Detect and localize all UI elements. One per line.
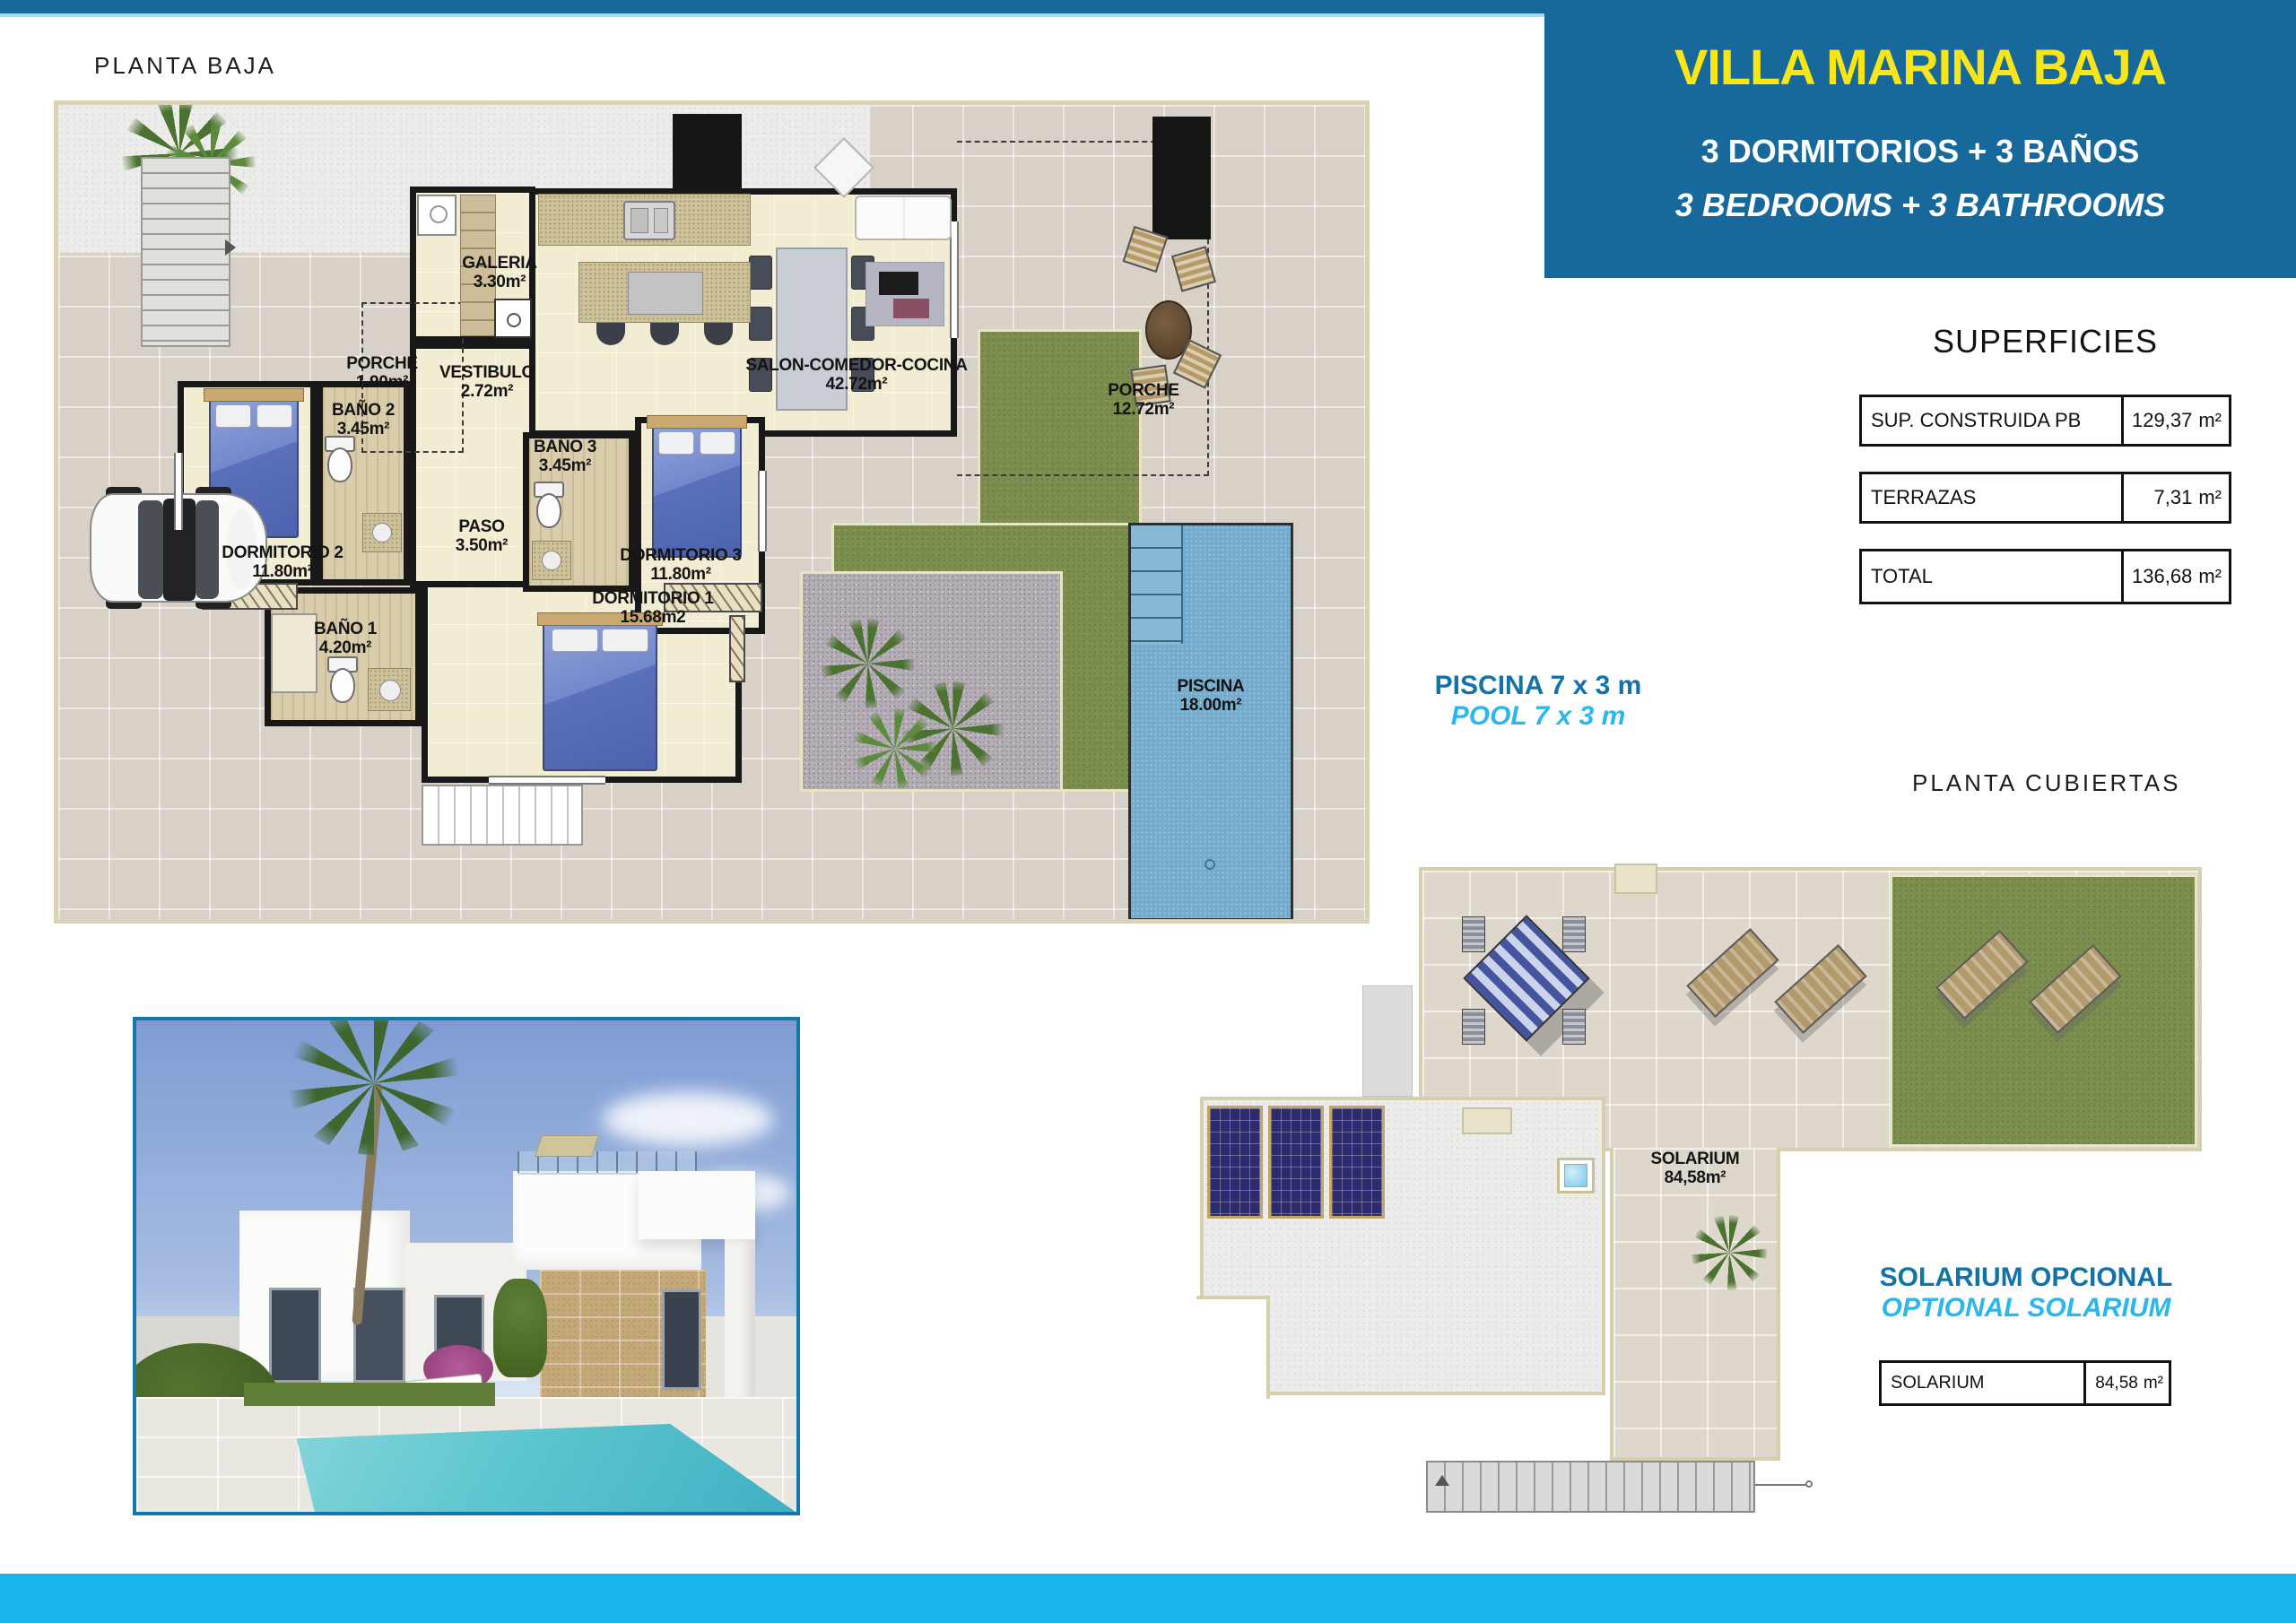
solarium-option: SOLARIUM OPCIONAL OPTIONAL SOLARIUM	[1874, 1263, 2179, 1324]
solarium-table: SOLARIUM 84,58m²	[1879, 1360, 2171, 1406]
window	[662, 1289, 701, 1390]
row-value: 136,68m²	[2121, 551, 2229, 602]
planting-bed	[800, 571, 1063, 792]
sofa	[855, 195, 952, 240]
window	[489, 776, 605, 785]
room-label-salon: SALON-COMEDOR-COCINA42.72m²	[745, 356, 967, 394]
roof-plan-title: PLANTA CUBIERTAS	[1912, 769, 2181, 797]
window	[269, 1288, 321, 1383]
room-label-paso: PASO3.50m²	[456, 517, 508, 555]
window	[950, 221, 959, 338]
roof-vent-block	[1614, 864, 1657, 894]
pool-steps	[1131, 525, 1183, 644]
handrail-end-icon	[1805, 1480, 1813, 1488]
pergola-chair	[1462, 1009, 1485, 1045]
toilet	[534, 482, 564, 528]
water-heater	[494, 299, 532, 338]
handrail-line	[1755, 1484, 1807, 1486]
stairs-direction-arrow-icon	[1435, 1475, 1449, 1486]
palm-plant	[821, 619, 915, 708]
bathroom-sink	[368, 668, 411, 711]
room-label-bano3: BAÑO 33.45m²	[534, 438, 596, 475]
row-value: 84,58m²	[2083, 1363, 2169, 1403]
pergola-chair	[1562, 1009, 1586, 1045]
solar-panel	[1268, 1106, 1324, 1219]
solarium-title-es: SOLARIUM OPCIONAL	[1874, 1263, 2179, 1293]
shower-tray	[271, 613, 317, 693]
row-label: SUP. CONSTRUIDA PB	[1862, 409, 2121, 432]
room-label-vestibulo: VESTIBULO2.72m²	[439, 363, 535, 401]
solar-panel	[1207, 1106, 1263, 1219]
roof-vent-block	[1462, 1107, 1512, 1134]
row-value: 129,37m²	[2121, 397, 2229, 444]
ground-floor-plan: GALERIA3.30m² PORCHE1.90m² VESTIBULO2.72…	[54, 100, 1370, 924]
kitchen-island	[578, 262, 751, 323]
pool-note: PISCINA 7 x 3 m POOL 7 x 3 m	[1422, 671, 1655, 732]
pool-note-en: POOL 7 x 3 m	[1422, 701, 1655, 732]
villa-canopy	[639, 1171, 755, 1239]
swimming-pool	[1128, 523, 1293, 921]
dining-chair	[749, 256, 772, 290]
wall-segment	[673, 114, 742, 189]
outdoor-steps	[422, 785, 583, 846]
superficies-title: SUPERFICIES	[1859, 323, 2231, 360]
table-row: TOTAL 136,68m²	[1859, 549, 2231, 604]
palm-plant	[852, 708, 937, 789]
wall-block	[1362, 985, 1413, 1097]
superficies-table: SUP. CONSTRUIDA PB 129,37m² TERRAZAS 7,3…	[1859, 395, 2231, 604]
toilet	[325, 436, 355, 482]
skylight	[1557, 1158, 1595, 1193]
room-label-solarium: SOLARIUM84,58m²	[1651, 1150, 1740, 1187]
solarium-title-en: OPTIONAL SOLARIUM	[1874, 1293, 2179, 1324]
wall-segment	[1152, 117, 1211, 239]
room-label-dorm1: DORMITORIO 115.68m2	[592, 589, 713, 627]
roof-stairs	[1426, 1461, 1755, 1513]
stairs-direction-arrow-icon	[225, 239, 236, 256]
bed	[652, 423, 742, 558]
top-bar-accent-line	[0, 13, 1544, 17]
header-subtitle-en: 3 BEDROOMS + 3 BATHROOMS	[1544, 187, 2296, 224]
palm-fronds	[284, 1017, 464, 1155]
pool-note-es: PISCINA 7 x 3 m	[1422, 671, 1655, 701]
toilet	[327, 656, 358, 703]
bush	[493, 1279, 547, 1377]
roof-notch	[1196, 1296, 1270, 1399]
photo-lawn	[244, 1383, 495, 1406]
table-row: TERRAZAS 7,31m²	[1859, 472, 2231, 524]
rug	[865, 262, 944, 326]
canopy-column	[725, 1239, 755, 1406]
solar-panel	[1329, 1106, 1385, 1219]
header-banner: VILLA MARINA BAJA 3 DORMITORIOS + 3 BAÑO…	[1544, 0, 2296, 278]
table-row: SUP. CONSTRUIDA PB 129,37m²	[1859, 395, 2231, 447]
row-value: 7,31m²	[2121, 474, 2229, 521]
superficies-section: SUPERFICIES	[1859, 323, 2231, 360]
room-label-bano2: BAÑO 23.45m²	[332, 401, 395, 438]
window	[174, 453, 183, 530]
kitchen-sink	[623, 201, 675, 240]
cloud	[603, 1092, 773, 1146]
pergola-chair	[1562, 916, 1586, 952]
roof-solarium-strip	[1610, 1148, 1780, 1461]
roof-tree	[1692, 1215, 1767, 1290]
roof-parasol	[535, 1135, 599, 1157]
page-title: VILLA MARINA BAJA	[1544, 38, 2296, 96]
ground-plan-title: PLANTA BAJA	[94, 52, 276, 80]
footer-band	[0, 1574, 2296, 1623]
room-label-dorm2: DORMITORIO 211.80m²	[222, 543, 343, 581]
row-label: TOTAL	[1862, 565, 2121, 588]
pergola-chair	[1462, 916, 1485, 952]
dining-chair	[749, 307, 772, 341]
row-label: TERRAZAS	[1862, 486, 2121, 509]
bathroom-sink	[362, 513, 402, 552]
bathroom-sink	[532, 541, 571, 580]
room-label-galeria: GALERIA3.30m²	[462, 254, 536, 291]
room-label-porche2: PORCHE12.72m²	[1108, 381, 1179, 419]
room-label-porche1: PORCHE1.90m²	[346, 354, 418, 392]
washing-machine	[417, 195, 457, 236]
room-label-piscina: PISCINA18.00m²	[1178, 677, 1245, 715]
bed	[543, 621, 657, 771]
wardrobe	[729, 615, 745, 682]
window	[758, 471, 767, 551]
villa-photo	[133, 1017, 800, 1515]
room-label-bano1: BAÑO 14.20m²	[314, 620, 377, 657]
roof-plan: SOLARIUM84,58m²	[1200, 867, 2202, 1515]
row-label: SOLARIUM	[1882, 1373, 2083, 1393]
stairs	[141, 157, 230, 347]
header-subtitle-es: 3 DORMITORIOS + 3 BAÑOS	[1544, 133, 2296, 170]
room-label-dorm3: DORMITORIO 311.80m²	[620, 546, 741, 584]
